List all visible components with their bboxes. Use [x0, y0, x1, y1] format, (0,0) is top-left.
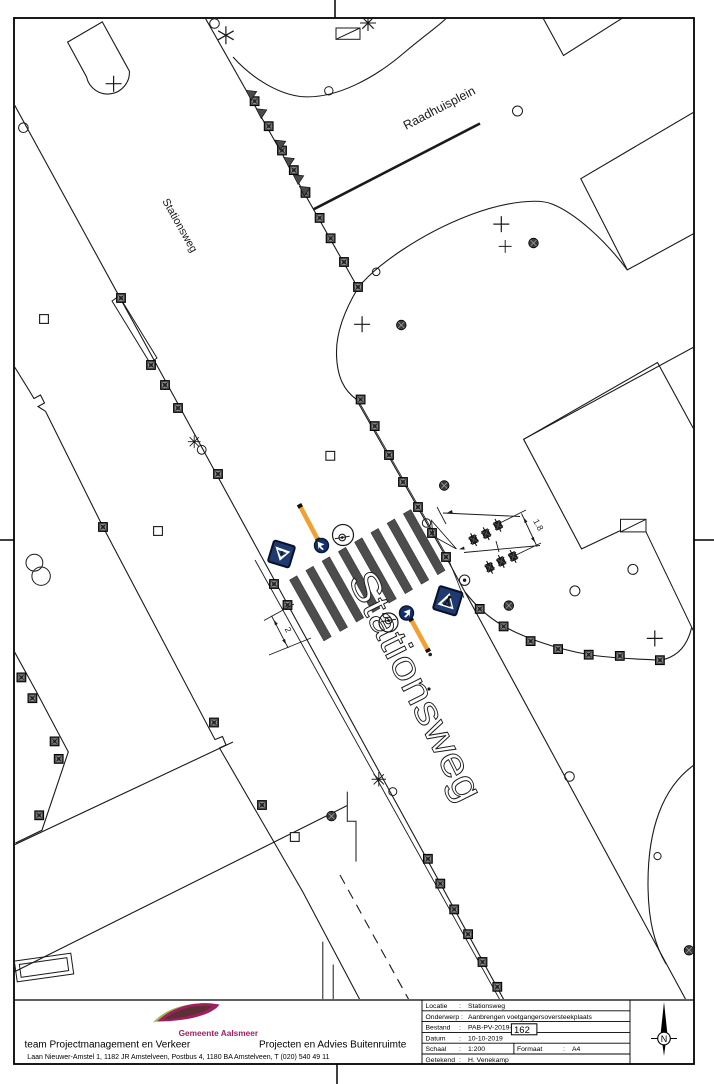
- svg-text:A4: A4: [572, 1046, 581, 1053]
- svg-text:H. Venekamp: H. Venekamp: [468, 1057, 509, 1064]
- svg-text:Onderwerp :: Onderwerp :: [426, 1014, 464, 1021]
- svg-text:Bestand: Bestand: [426, 1025, 451, 1032]
- svg-text:Stationsweg: Stationsweg: [159, 197, 199, 255]
- svg-text:Schaal: Schaal: [426, 1046, 447, 1053]
- svg-text:Laan Nieuwer-Amstel 1, 1182 JR: Laan Nieuwer-Amstel 1, 1182 JR Amstelvee…: [27, 1054, 329, 1061]
- svg-text:Projecten en Advies Buitenruim: Projecten en Advies Buitenruimte: [259, 1040, 407, 1051]
- svg-text:10-10-2019: 10-10-2019: [468, 1035, 503, 1042]
- svg-text:N: N: [661, 1034, 668, 1044]
- svg-text::: :: [459, 1035, 461, 1042]
- svg-text:162: 162: [514, 1025, 530, 1036]
- svg-text::: :: [563, 1046, 565, 1053]
- svg-text:PAB-PV-2019-: PAB-PV-2019-: [468, 1025, 512, 1032]
- svg-text:Stationsweg: Stationsweg: [468, 1003, 505, 1010]
- svg-text:team Projectmanagement en Verk: team Projectmanagement en Verkeer: [25, 1040, 191, 1051]
- svg-text::: :: [459, 1057, 461, 1064]
- svg-text:Getekend: Getekend: [426, 1057, 456, 1064]
- svg-text:1.8: 1.8: [531, 517, 546, 532]
- svg-text:Raadhuisplein: Raadhuisplein: [401, 84, 478, 133]
- svg-text:Stationsweg: Stationsweg: [339, 563, 491, 808]
- svg-text:1:200: 1:200: [468, 1046, 485, 1053]
- svg-text::: :: [459, 1025, 461, 1032]
- svg-text:2: 2: [283, 625, 294, 634]
- svg-text::: :: [459, 1003, 461, 1010]
- svg-text:Datum: Datum: [426, 1035, 446, 1042]
- svg-text:Aanbrengen voetgangersoverstee: Aanbrengen voetgangersoversteekplaats: [468, 1014, 593, 1021]
- svg-text:Gemeente Aalsmeer: Gemeente Aalsmeer: [179, 1028, 259, 1038]
- svg-text:Formaat: Formaat: [517, 1046, 542, 1053]
- svg-text::: :: [459, 1046, 461, 1053]
- svg-text:Locatie: Locatie: [426, 1003, 448, 1010]
